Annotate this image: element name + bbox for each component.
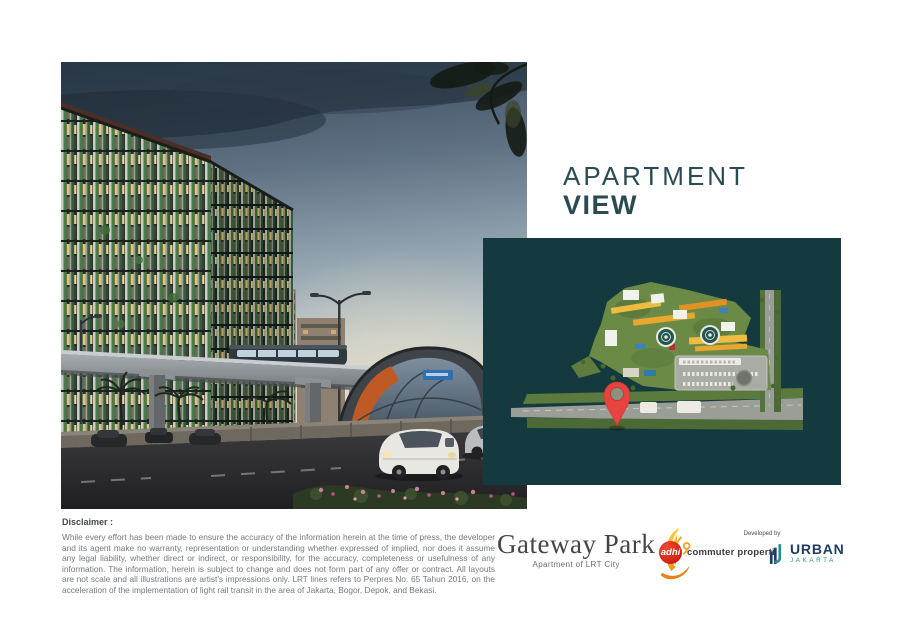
map-parking-lot [675, 356, 767, 390]
brochure-page: APARTMENT VIEW [0, 0, 906, 640]
developed-by-label: Developed by [727, 531, 797, 537]
disclaimer-body: While every effort has been made to ensu… [62, 532, 495, 596]
disclaimer-heading: Disclaimer : [62, 517, 495, 527]
map-main-road [511, 388, 803, 430]
urban-sub: JAKARTA [790, 557, 845, 565]
page-title-line1: APARTMENT [563, 161, 748, 191]
hero-photo [61, 62, 527, 509]
urban-jakarta-text-block: URBAN JAKARTA [790, 542, 845, 565]
page-title-line2: VIEW [563, 191, 748, 220]
adhi-label: commuter properti [687, 547, 775, 558]
disclaimer: Disclaimer : While every effort has been… [62, 517, 495, 596]
urban-name: URBAN [790, 542, 845, 556]
gateway-park-wordmark-block: Gateway Park Apartment of LRT City [497, 529, 655, 569]
gateway-park-wordmark: Gateway Park [497, 529, 655, 559]
site-map-illustration [483, 238, 841, 485]
urban-jakarta-logo-icon [769, 543, 787, 565]
site-map-panel [483, 238, 841, 485]
adhi-mark-text: adhi [661, 547, 681, 558]
page-title: APARTMENT VIEW [563, 161, 748, 220]
urban-jakarta-logo: URBAN JAKARTA [769, 542, 845, 565]
adhi-logo-icon: adhi [659, 541, 682, 564]
gateway-park-tagline: Apartment of LRT City [497, 560, 655, 569]
hero-photo-illustration [61, 62, 527, 509]
adhi-commuter-properti-logo: adhi commuter properti [659, 541, 775, 564]
